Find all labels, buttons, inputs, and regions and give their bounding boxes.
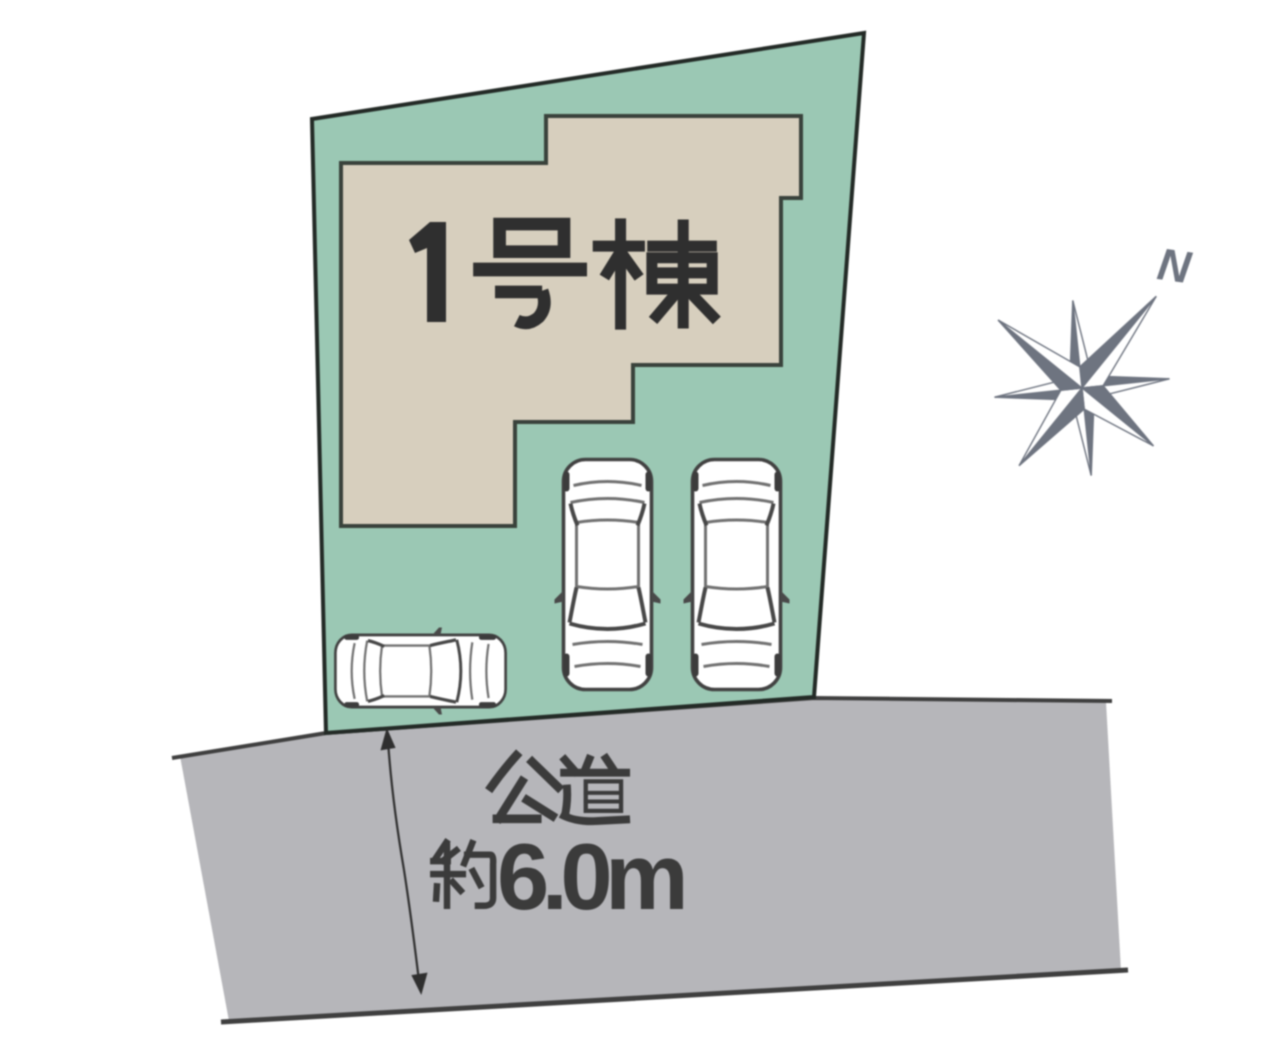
svg-text:6.0m: 6.0m — [497, 824, 683, 929]
svg-text:N: N — [1155, 238, 1196, 293]
